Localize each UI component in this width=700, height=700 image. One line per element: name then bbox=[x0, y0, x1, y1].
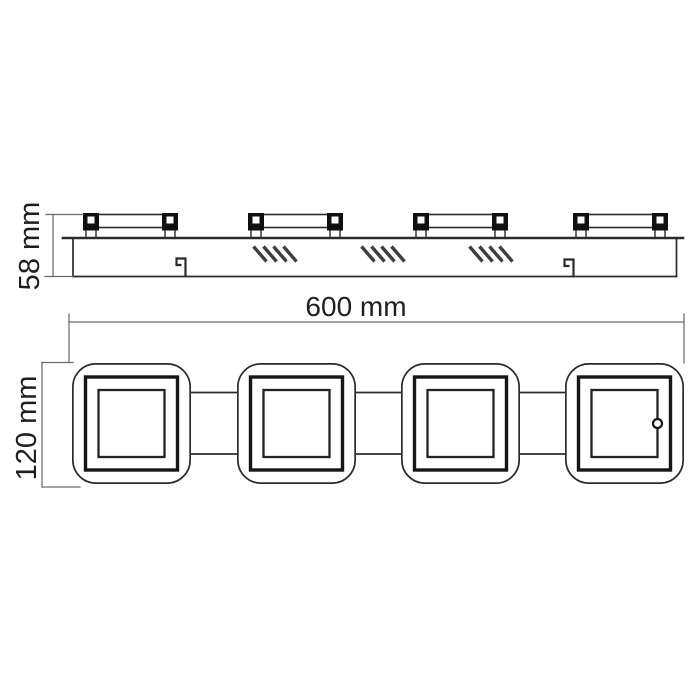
mounting-bracket-4 bbox=[573, 213, 668, 238]
lamp-head-3 bbox=[402, 364, 519, 483]
lamp-head-1 bbox=[73, 364, 190, 483]
height-120-dimension: 120 mm bbox=[11, 363, 80, 488]
lamp-knob-detail bbox=[653, 419, 662, 428]
clip-hook-right bbox=[565, 260, 574, 278]
width-600-label: 600 mm bbox=[305, 291, 406, 322]
mounting-bracket-1 bbox=[83, 213, 178, 238]
front-view: 600 mm 120 mm bbox=[11, 291, 684, 487]
vent-hatch-group-1 bbox=[254, 247, 297, 262]
fixture-dimension-drawing: 58 mm 600 mm 120 mm bbox=[0, 0, 700, 700]
vent-hatch-group-2 bbox=[362, 247, 405, 262]
mounting-bracket-2 bbox=[248, 213, 343, 238]
vent-hatch-group-3 bbox=[470, 247, 513, 262]
width-600-dimension: 600 mm bbox=[69, 291, 684, 363]
lamp-head-4 bbox=[566, 364, 683, 483]
technical-drawing-page: 58 mm 600 mm 120 mm bbox=[0, 0, 700, 700]
height-58-label: 58 mm bbox=[14, 202, 46, 291]
height-120-label: 120 mm bbox=[11, 376, 43, 481]
clip-hook-left bbox=[177, 259, 186, 277]
lamp-head-2 bbox=[238, 364, 355, 483]
side-view: 58 mm bbox=[14, 202, 683, 291]
mounting-bracket-3 bbox=[413, 213, 508, 238]
